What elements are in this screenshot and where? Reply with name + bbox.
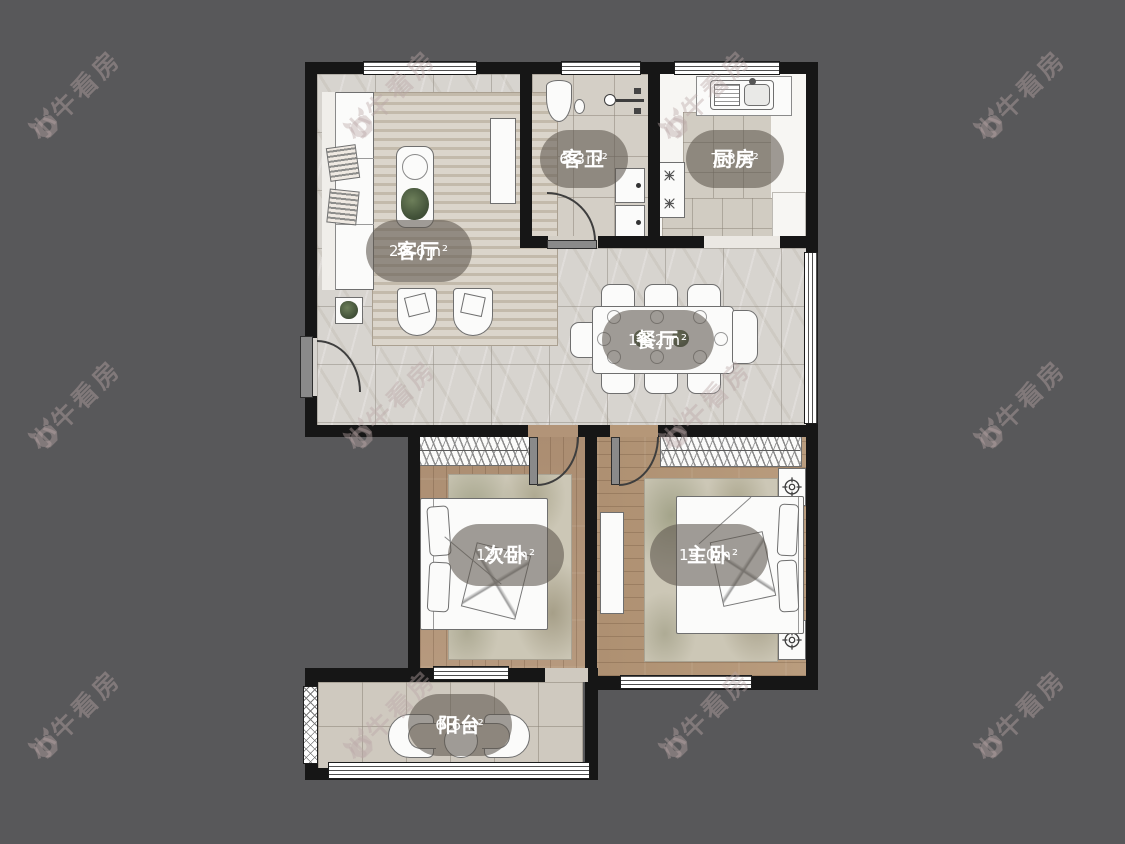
- room-area: 20.6m²: [389, 242, 449, 260]
- room-area: 15.0m²: [679, 546, 739, 564]
- watermark-text: 小牛看房: [21, 350, 128, 457]
- room-label-master-bedroom: 主卧 15.0m²: [650, 524, 768, 586]
- watermark-text: 小牛看房: [336, 40, 443, 147]
- room-label-dining: 餐厅 14.2m²: [602, 310, 714, 370]
- room-area: 14.2m²: [628, 331, 688, 349]
- watermark-text: 小牛看房: [966, 40, 1073, 147]
- room-area: 7.3m²: [710, 150, 759, 168]
- watermark-text: 小牛看房: [966, 350, 1073, 457]
- room-label-bathroom: 客卫 6.3m²: [540, 130, 628, 188]
- room-area: 6.6m²: [435, 716, 484, 734]
- room-area: 6.3m²: [559, 150, 608, 168]
- watermark-text: 小牛看房: [21, 40, 128, 147]
- room-label-second-bedroom: 次卧 12.4m²: [448, 524, 564, 586]
- watermark-text: 小牛看房: [336, 350, 443, 457]
- watermark-text: 小牛看房: [966, 660, 1073, 767]
- room-area: 12.4m²: [476, 546, 536, 564]
- room-label-living: 客厅 20.6m²: [366, 220, 472, 282]
- room-label-kitchen: 厨房 7.3m²: [686, 130, 784, 188]
- floorplan-canvas: 客厅 20.6m² 客卫 6.3m² 厨房 7.3m² 餐厅 14.2m² 次卧…: [0, 0, 1125, 844]
- watermark-text: 小牛看房: [21, 660, 128, 767]
- watermark-text: 小牛看房: [651, 660, 758, 767]
- watermark-layer: 小牛看房小牛看房小牛看房小牛看房小牛看房小牛看房小牛看房小牛看房小牛看房小牛看房…: [0, 0, 1125, 844]
